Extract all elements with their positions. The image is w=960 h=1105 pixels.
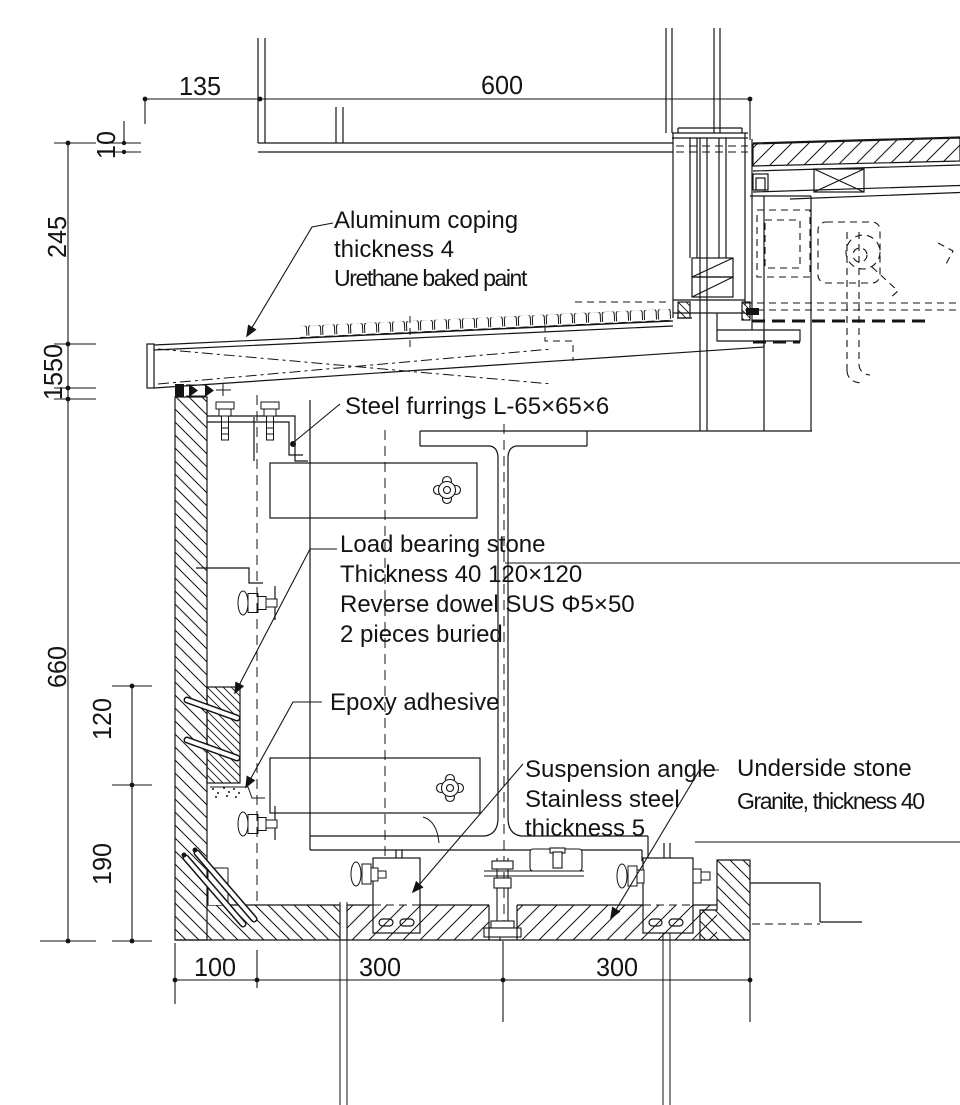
drawing-sheet: Aluminum coping thickness 4 Urethane bak… (0, 0, 960, 1105)
dim-190: 190 (87, 820, 117, 907)
callout-line: 2 pieces buried (340, 620, 635, 650)
callout-epoxy-adhesive: Epoxy adhesive (330, 688, 499, 717)
dim-10: 10 (91, 101, 121, 188)
callout-line: Urethane baked paint (334, 264, 526, 293)
callout-line: Stainless steel (525, 785, 716, 815)
anchor-bolts-top (216, 402, 279, 440)
callout-load-bearing-stone: Load bearing stone Thickness 40 120×120 … (340, 530, 635, 650)
callout-aluminum-coping: Aluminum coping thickness 4 Urethane bak… (334, 206, 526, 293)
callout-line: Underside stone (737, 752, 924, 785)
concealed-dashed-parts (575, 210, 960, 383)
callout-line: Reverse dowel SUS Φ5×50 (340, 590, 635, 620)
aluminum-coping (147, 309, 800, 388)
coping-anchor-clips (175, 384, 231, 397)
dim-600: 600 (458, 70, 545, 100)
dim-120: 120 (87, 675, 117, 762)
callout-suspension-angle: Suspension angle Stainless steel thickne… (525, 755, 716, 844)
parapet-wall (175, 384, 308, 940)
callout-line: Load bearing stone (340, 530, 635, 560)
dim-135: 135 (156, 71, 243, 101)
load-bearing-stone-leader (235, 549, 337, 693)
epoxy-dots (212, 787, 240, 798)
callout-line: thickness 4 (334, 235, 526, 264)
callout-underside-stone: Underside stone Granite, thickness 40 (737, 752, 924, 818)
dim-300-left: 300 (336, 952, 423, 982)
callout-line: Steel furrings L-65×65×6 (345, 392, 609, 421)
callout-line: Granite, thickness 40 (737, 785, 924, 818)
callout-steel-furrings: Steel furrings L-65×65×6 (345, 392, 609, 421)
sealant-corrugation (299, 309, 671, 338)
callout-line: Suspension angle (525, 755, 716, 785)
steel-furrings (257, 395, 504, 928)
suspension-angle-leader-left (413, 764, 523, 892)
steel-furrings-leader (294, 404, 340, 442)
aluminum-coping-leader (247, 223, 333, 336)
dim-245: 245 (42, 193, 72, 280)
callout-line: Thickness 40 120×120 (340, 560, 635, 590)
window-mullion (672, 128, 759, 431)
underside-stone (175, 860, 862, 940)
callout-line: Epoxy adhesive (330, 688, 499, 717)
dim-300-right: 300 (573, 952, 660, 982)
dim-100: 100 (171, 952, 258, 982)
callout-line: Aluminum coping (334, 206, 526, 235)
load-bearing-stone-block (207, 687, 265, 798)
dim-660: 660 (42, 623, 72, 710)
dim-1550: 1550 (38, 328, 68, 415)
callout-line: thickness 5 (525, 814, 716, 844)
